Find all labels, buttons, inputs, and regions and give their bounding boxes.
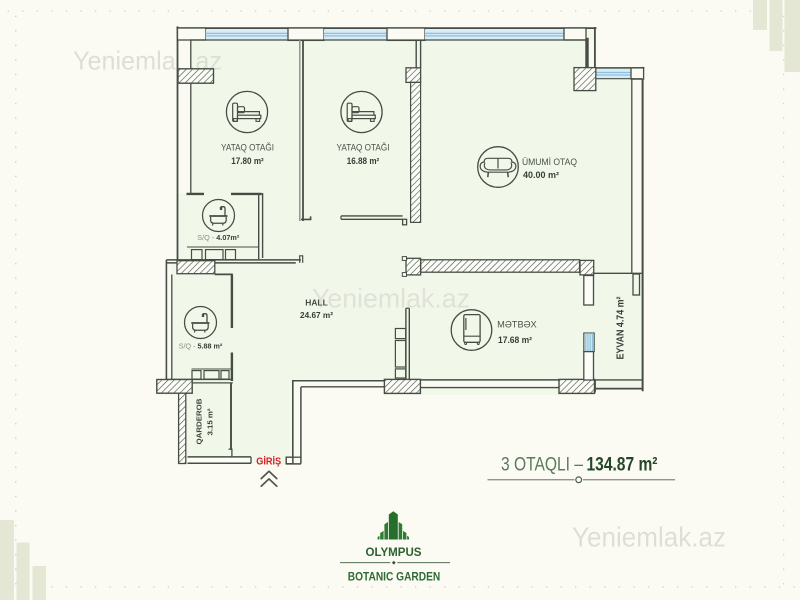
svg-text:QARDEROB: QARDEROB <box>195 399 204 445</box>
svg-text:YATAQ OTAĞI: YATAQ OTAĞI <box>337 143 390 153</box>
svg-text:HALL: HALL <box>305 299 328 308</box>
svg-text:S/Q - 5.88 m²: S/Q - 5.88 m² <box>179 341 223 350</box>
svg-text:3 OTAQLI –: 3 OTAQLI – <box>501 454 583 476</box>
svg-text:24.67 m²: 24.67 m² <box>300 310 333 320</box>
svg-text:YATAQ OTAĞI: YATAQ OTAĞI <box>221 143 274 153</box>
svg-text:134.87 m²: 134.87 m² <box>587 454 658 476</box>
svg-text:17.68 m²: 17.68 m² <box>498 335 532 345</box>
svg-text:ÜMUMİ OTAQ: ÜMUMİ OTAQ <box>522 157 577 167</box>
svg-text:3.15 m²: 3.15 m² <box>206 408 215 436</box>
svg-text:Yeniemlak.az: Yeniemlak.az <box>312 284 470 314</box>
svg-text:OLYMPUS: OLYMPUS <box>366 547 422 559</box>
svg-text:S/Q - 4.07m²: S/Q - 4.07m² <box>197 233 240 242</box>
svg-text:17.80 m²: 17.80 m² <box>231 156 264 166</box>
svg-text:EYVAN 4.74 m²: EYVAN 4.74 m² <box>615 296 627 359</box>
svg-text:BOTANIC GARDEN: BOTANIC GARDEN <box>348 569 441 583</box>
svg-text:MƏTBƏX: MƏTBƏX <box>497 319 537 329</box>
svg-text:16.88 m²: 16.88 m² <box>347 156 380 166</box>
svg-text:GİRİŞ: GİRİŞ <box>256 454 281 467</box>
svg-text:40.00 m²: 40.00 m² <box>523 170 559 180</box>
svg-text:Yeniemlak.az: Yeniemlak.az <box>572 522 726 553</box>
